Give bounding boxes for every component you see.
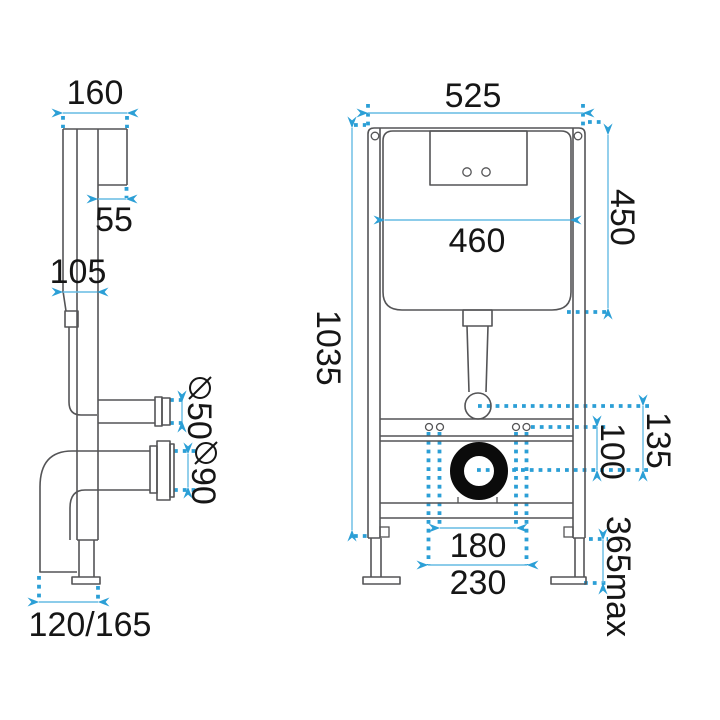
inlet-pipe-flange-lip	[162, 398, 170, 425]
flush-button-hole-right	[482, 168, 490, 176]
inspection-panel	[430, 131, 527, 185]
outlet-socket-step	[150, 446, 157, 493]
inlet-pipe-flange	[155, 397, 162, 426]
label-inlet-pipe-diameter: 50	[180, 402, 218, 440]
fixing-hole	[426, 424, 433, 431]
frame-outline	[368, 128, 585, 538]
foot-plate-right	[551, 577, 586, 584]
dimension-labels: 160 55 105 50 90 120/165 525 1035 450 46…	[29, 74, 677, 644]
fixing-hole	[437, 424, 444, 431]
outlet-socket	[157, 441, 170, 500]
fixing-hole	[513, 424, 520, 431]
diameter-symbol-50-icon	[189, 377, 211, 399]
hanger-hole-left	[371, 132, 379, 140]
label-frame-height: 1035	[309, 310, 347, 386]
label-foot-adjust-range: 120/165	[29, 606, 152, 644]
foot-plate-left	[363, 577, 400, 584]
wc-frame-drawing: 160 55 105 50 90 120/165 525 1035 450 46…	[0, 0, 720, 720]
label-flush-bend-offset: 135	[639, 412, 677, 469]
fixing-hole	[523, 424, 530, 431]
side-leg	[77, 540, 98, 577]
label-fixing-offset: 100	[593, 423, 631, 480]
leg-lock-left	[380, 527, 389, 537]
outlet-elbow-outer	[40, 451, 150, 572]
outlet-elbow-inner	[70, 490, 150, 540]
label-cistern-height: 450	[603, 189, 641, 246]
wall-bracket	[98, 129, 127, 185]
label-fixing-spacing-inner: 180	[450, 527, 507, 565]
label-cistern-width: 460	[449, 222, 506, 260]
label-outlet-pipe-diameter: 90	[184, 467, 222, 505]
label-frame-width: 525	[445, 77, 502, 115]
label-fixing-spacing-outer: 230	[450, 564, 507, 602]
inlet-pipe	[98, 400, 155, 423]
side-foot-plate	[72, 577, 100, 584]
diameter-symbol-90-icon	[195, 442, 217, 464]
cross-bars	[380, 419, 573, 518]
hanger-hole-right	[574, 132, 582, 140]
label-cistern-depth: 105	[50, 253, 107, 291]
flush-button-hole-left	[463, 168, 471, 176]
label-leg-extension-max: 365max	[599, 516, 637, 637]
label-bracket-offset: 55	[95, 201, 133, 239]
flush-pipe-collar	[463, 310, 492, 326]
flush-pipe-joint	[65, 311, 78, 327]
label-total-depth: 160	[67, 74, 124, 112]
outlet-socket-lip	[170, 444, 174, 497]
frame-rails-inner	[380, 128, 573, 538]
cistern-lower-profile	[69, 327, 97, 415]
flush-pipe	[467, 326, 488, 392]
side-view	[40, 129, 174, 584]
technical-drawing-page: 160 55 105 50 90 120/165 525 1035 450 46…	[0, 0, 720, 720]
leg-lock-right	[564, 527, 573, 537]
front-view	[363, 128, 586, 584]
